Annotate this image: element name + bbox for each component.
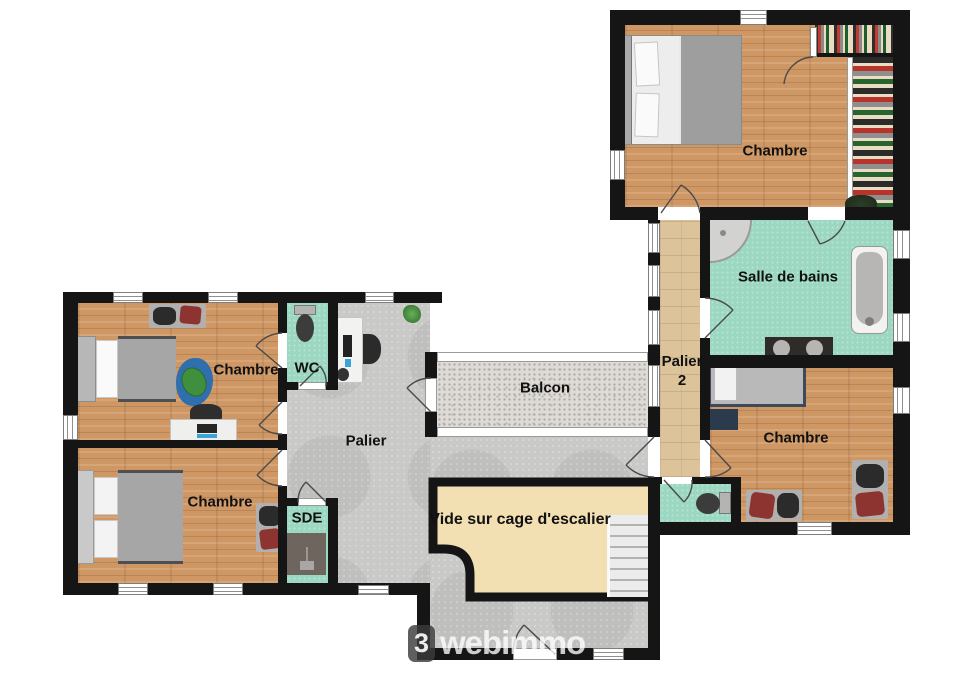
- pillow: [94, 520, 118, 558]
- window: [63, 415, 78, 440]
- window: [118, 583, 148, 595]
- pouf: [153, 307, 176, 325]
- window: [113, 292, 143, 303]
- window: [610, 150, 625, 180]
- window: [893, 387, 910, 414]
- shower-head: [300, 561, 314, 570]
- wall: [893, 10, 910, 535]
- door-opening: [808, 207, 845, 220]
- room-label-chambre-top-left: Chambre: [213, 362, 278, 379]
- toilet-tank: [719, 492, 731, 514]
- window: [648, 265, 660, 297]
- pillow: [96, 340, 118, 398]
- room-label-palier-2: Palier 2: [658, 352, 706, 390]
- headboard: [76, 470, 94, 564]
- bathtub: [851, 246, 888, 334]
- window: [893, 230, 910, 259]
- room-label-palier: Palier: [346, 433, 387, 450]
- shower-tray: [287, 533, 326, 575]
- window: [213, 583, 243, 595]
- pouf: [856, 464, 884, 488]
- window: [648, 310, 660, 345]
- room-label-sde: SDE: [292, 510, 323, 527]
- closet: [853, 57, 893, 212]
- wall: [610, 10, 625, 220]
- window: [358, 585, 389, 595]
- pouf: [179, 305, 201, 325]
- watermark-brand: webimmo: [440, 624, 585, 662]
- window: [740, 10, 767, 25]
- laptop: [197, 424, 217, 433]
- blanket: [118, 336, 176, 402]
- watermark: 3 webimmo: [408, 624, 585, 662]
- closet-sliding-door: [847, 57, 853, 212]
- staircase: [607, 515, 649, 597]
- desk: [170, 419, 237, 441]
- door-opening: [700, 298, 710, 338]
- door-opening: [662, 477, 692, 484]
- rug: [149, 304, 206, 328]
- nightstand: [710, 409, 738, 430]
- room-label-chambre-top-right: Chambre: [742, 143, 807, 160]
- pillow: [94, 477, 118, 515]
- door-opening: [298, 382, 326, 390]
- double-bed: [76, 470, 183, 564]
- blanket: [679, 36, 741, 144]
- keyboard: [197, 434, 217, 438]
- monitor: [343, 335, 352, 357]
- window: [648, 223, 660, 253]
- pouf: [777, 493, 799, 518]
- pouf: [748, 491, 775, 519]
- shower-drain: [720, 230, 726, 236]
- rug: [852, 460, 888, 519]
- pillow: [634, 93, 660, 138]
- door-opening: [700, 440, 710, 477]
- bathtub-basin: [856, 252, 883, 325]
- keyboard: [345, 359, 351, 367]
- toilet-bowl: [296, 314, 314, 342]
- window: [593, 648, 624, 660]
- plant: [403, 305, 421, 323]
- wall: [700, 355, 893, 368]
- door-opening: [648, 437, 660, 477]
- crocodile: [177, 363, 211, 400]
- window: [208, 292, 238, 303]
- bathtub-faucet: [865, 317, 874, 326]
- room-label-wc: WC: [295, 360, 320, 377]
- room-label-salle-de-bains: Salle de bains: [738, 269, 838, 286]
- room-label-chambre-bottom-left: Chambre: [187, 494, 252, 511]
- door-opening: [658, 207, 700, 220]
- door-opening: [425, 378, 437, 412]
- wall: [648, 522, 910, 535]
- shower-pipe: [306, 547, 308, 561]
- floor-plan: Chambre Salle de bains Palier 2 Chambre …: [0, 0, 960, 679]
- wall: [328, 498, 338, 583]
- double-bed: [619, 36, 741, 144]
- window: [797, 522, 832, 535]
- closet: [815, 25, 893, 57]
- headboard: [77, 336, 96, 402]
- double-bed: [77, 336, 176, 402]
- door-opening: [298, 498, 326, 506]
- door-opening: [278, 402, 287, 434]
- door-opening: [278, 450, 287, 486]
- watermark-logo: 3: [408, 625, 435, 662]
- room-label-balcon: Balcon: [520, 380, 570, 397]
- room-label-vide-escalier: Vide sur cage d'escalier: [429, 511, 610, 529]
- wall: [328, 292, 338, 390]
- room-label-chambre-right: Chambre: [763, 430, 828, 447]
- desk-item: [337, 368, 349, 381]
- window: [365, 292, 394, 303]
- closet-door-leaf: [810, 27, 817, 57]
- pillow: [714, 367, 737, 401]
- window: [893, 313, 910, 342]
- blanket: [118, 470, 183, 564]
- wall: [63, 440, 287, 448]
- pouf: [855, 491, 885, 518]
- pillow: [634, 41, 660, 86]
- rug: [746, 490, 802, 521]
- toilet-bowl: [696, 493, 720, 514]
- door-opening: [278, 333, 287, 368]
